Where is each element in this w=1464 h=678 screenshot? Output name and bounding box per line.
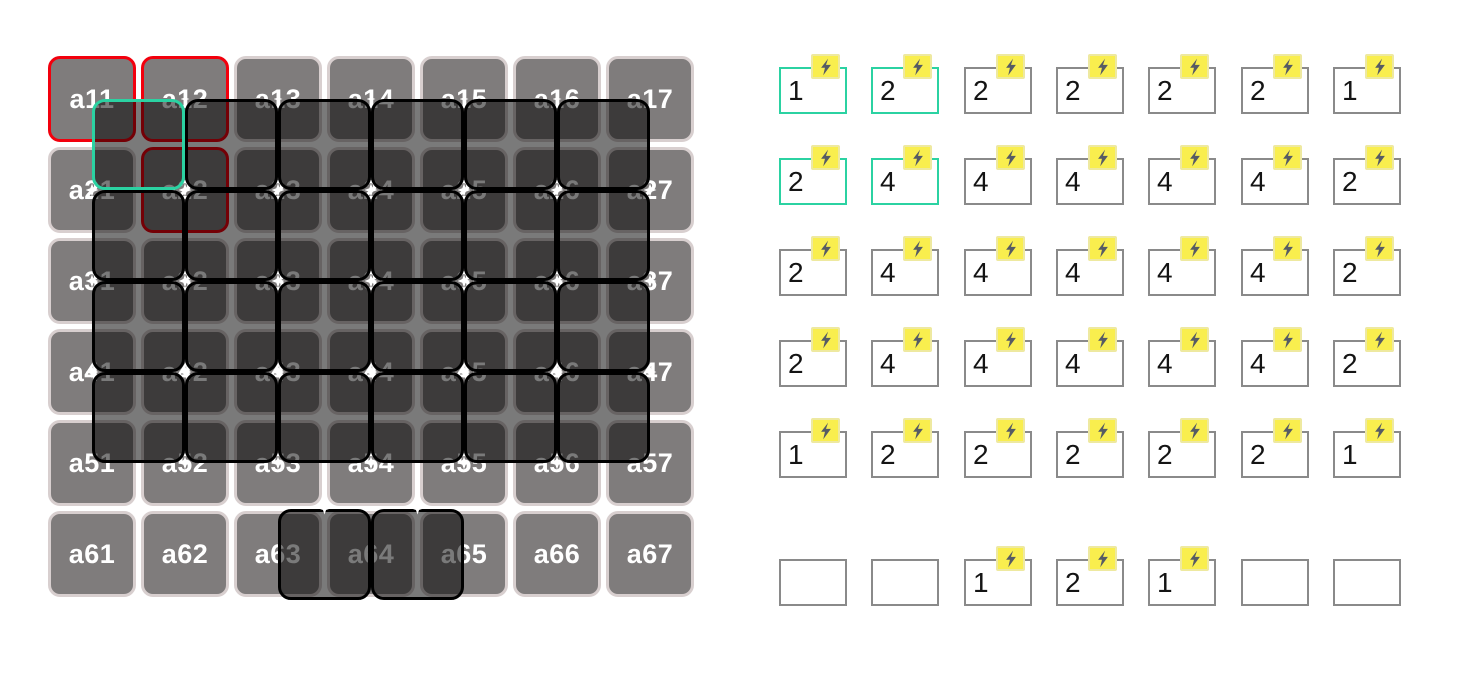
lightning-badge <box>1365 236 1394 261</box>
lightning-badge <box>811 236 840 261</box>
lightning-badge <box>1180 145 1209 170</box>
count-box: 4 <box>1056 158 1124 205</box>
kernel-overlay <box>92 281 185 372</box>
lightning-badge <box>1365 145 1394 170</box>
count-box: 2 <box>779 158 847 205</box>
lightning-badge <box>1365 54 1394 79</box>
lightning-badge <box>811 327 840 352</box>
lightning-bolt-icon <box>1373 330 1387 350</box>
count-box: 4 <box>1056 249 1124 296</box>
count-box <box>1333 559 1401 606</box>
count-box: 2 <box>871 67 939 114</box>
count-box: 2 <box>1056 67 1124 114</box>
lightning-badge <box>996 54 1025 79</box>
count-value: 1 <box>788 75 804 107</box>
count-box: 4 <box>1148 158 1216 205</box>
lightning-bolt-icon <box>1281 330 1295 350</box>
kernel-overlay-bottom <box>278 509 371 600</box>
lightning-bolt-icon <box>1096 239 1110 259</box>
lightning-badge <box>1273 418 1302 443</box>
count-box: 2 <box>964 67 1032 114</box>
pooling-coverage-diagram: a11a12a13a14a15a16a17a21a22a23a24a25a26a… <box>0 0 1464 678</box>
count-value: 4 <box>1065 348 1081 380</box>
count-box: 2 <box>1241 67 1309 114</box>
lightning-badge <box>996 418 1025 443</box>
count-box: 2 <box>1148 67 1216 114</box>
count-value: 1 <box>1157 567 1173 599</box>
count-value: 4 <box>880 166 896 198</box>
count-value: 4 <box>1250 348 1266 380</box>
count-box: 2 <box>1056 559 1124 606</box>
lightning-bolt-icon <box>819 421 833 441</box>
count-box: 1 <box>779 67 847 114</box>
count-value: 2 <box>1250 439 1266 471</box>
lightning-bolt-icon <box>1373 57 1387 77</box>
kernel-overlay <box>92 190 185 281</box>
grid-cell-a62: a62 <box>141 511 229 597</box>
count-box: 4 <box>1056 340 1124 387</box>
kernel-overlay <box>464 99 557 190</box>
count-value: 4 <box>1157 166 1173 198</box>
kernel-overlay <box>92 372 185 463</box>
lightning-bolt-icon <box>819 330 833 350</box>
lightning-badge <box>903 327 932 352</box>
lightning-bolt-icon <box>1096 549 1110 569</box>
count-box: 2 <box>1333 158 1401 205</box>
lightning-bolt-icon <box>1281 148 1295 168</box>
kernel-overlay <box>464 190 557 281</box>
count-value: 2 <box>1157 439 1173 471</box>
lightning-bolt-icon <box>1004 330 1018 350</box>
count-box: 2 <box>871 431 939 478</box>
lightning-bolt-icon <box>911 421 925 441</box>
lightning-bolt-icon <box>1188 330 1202 350</box>
lightning-bolt-icon <box>819 57 833 77</box>
grid-cell-a66: a66 <box>513 511 601 597</box>
count-box: 2 <box>964 431 1032 478</box>
lightning-badge <box>811 145 840 170</box>
count-box: 4 <box>964 340 1032 387</box>
kernel-overlay <box>557 99 650 190</box>
grid-cell-a67: a67 <box>606 511 694 597</box>
count-box: 2 <box>1056 431 1124 478</box>
count-value: 2 <box>1342 348 1358 380</box>
lightning-badge <box>811 418 840 443</box>
lightning-badge <box>1180 418 1209 443</box>
lightning-bolt-icon <box>1188 148 1202 168</box>
lightning-badge <box>903 418 932 443</box>
grid-cell-label: a62 <box>162 539 209 570</box>
lightning-bolt-icon <box>1004 148 1018 168</box>
count-box: 4 <box>1148 340 1216 387</box>
lightning-badge <box>903 54 932 79</box>
lightning-bolt-icon <box>911 330 925 350</box>
kernel-overlay <box>185 190 278 281</box>
lightning-bolt-icon <box>911 239 925 259</box>
lightning-badge <box>996 327 1025 352</box>
count-value: 2 <box>788 348 804 380</box>
kernel-overlay <box>464 281 557 372</box>
lightning-badge <box>1180 546 1209 571</box>
lightning-badge <box>1088 236 1117 261</box>
kernel-overlay <box>371 190 464 281</box>
kernel-overlay <box>464 372 557 463</box>
lightning-badge <box>1088 546 1117 571</box>
count-value: 4 <box>1250 257 1266 289</box>
count-box: 4 <box>871 249 939 296</box>
count-box: 1 <box>1333 67 1401 114</box>
lightning-badge <box>1180 54 1209 79</box>
lightning-bolt-icon <box>911 57 925 77</box>
count-box: 4 <box>964 158 1032 205</box>
count-value: 2 <box>1342 166 1358 198</box>
count-value: 4 <box>880 257 896 289</box>
lightning-badge <box>1273 145 1302 170</box>
count-value: 4 <box>1157 348 1173 380</box>
count-value: 4 <box>880 348 896 380</box>
lightning-badge <box>1273 236 1302 261</box>
kernel-overlay <box>557 281 650 372</box>
lightning-badge <box>1088 54 1117 79</box>
count-value: 2 <box>973 75 989 107</box>
lightning-bolt-icon <box>819 239 833 259</box>
count-value: 4 <box>1065 166 1081 198</box>
kernel-overlay <box>185 372 278 463</box>
kernel-overlay <box>278 99 371 190</box>
count-box: 2 <box>779 249 847 296</box>
kernel-overlay <box>278 372 371 463</box>
lightning-bolt-icon <box>819 148 833 168</box>
count-box: 2 <box>1333 340 1401 387</box>
count-value: 2 <box>880 439 896 471</box>
count-box: 1 <box>1333 431 1401 478</box>
count-box: 2 <box>779 340 847 387</box>
count-value: 1 <box>1342 439 1358 471</box>
grid-cell-label: a67 <box>627 539 674 570</box>
count-value: 4 <box>1157 257 1173 289</box>
lightning-bolt-icon <box>1188 549 1202 569</box>
count-value: 2 <box>1157 75 1173 107</box>
lightning-bolt-icon <box>911 148 925 168</box>
lightning-bolt-icon <box>1004 57 1018 77</box>
count-box: 4 <box>1241 340 1309 387</box>
lightning-bolt-icon <box>1004 239 1018 259</box>
count-value: 4 <box>1250 166 1266 198</box>
count-box <box>1241 559 1309 606</box>
count-box <box>779 559 847 606</box>
count-box: 4 <box>1241 158 1309 205</box>
lightning-badge <box>1365 327 1394 352</box>
lightning-badge <box>1180 236 1209 261</box>
lightning-badge <box>1088 145 1117 170</box>
lightning-bolt-icon <box>1188 57 1202 77</box>
sparkle-icon <box>133 503 145 515</box>
count-box: 4 <box>871 340 939 387</box>
count-box: 1 <box>779 431 847 478</box>
lightning-badge <box>1273 327 1302 352</box>
lightning-bolt-icon <box>1373 421 1387 441</box>
count-value: 1 <box>788 439 804 471</box>
lightning-badge <box>903 145 932 170</box>
count-value: 2 <box>1250 75 1266 107</box>
count-box: 4 <box>871 158 939 205</box>
sparkle-icon <box>598 503 610 515</box>
grid-cell-a61: a61 <box>48 511 136 597</box>
grid-cell-label: a61 <box>69 539 116 570</box>
lightning-bolt-icon <box>1373 148 1387 168</box>
lightning-bolt-icon <box>1096 421 1110 441</box>
grid-cell-label: a66 <box>534 539 581 570</box>
kernel-overlay <box>278 190 371 281</box>
count-value: 2 <box>788 166 804 198</box>
lightning-badge <box>1088 418 1117 443</box>
count-box: 2 <box>1148 431 1216 478</box>
kernel-overlay <box>371 99 464 190</box>
count-box: 4 <box>964 249 1032 296</box>
count-box: 1 <box>1148 559 1216 606</box>
lightning-badge <box>1365 418 1394 443</box>
count-box <box>871 559 939 606</box>
lightning-bolt-icon <box>1281 421 1295 441</box>
lightning-bolt-icon <box>1004 421 1018 441</box>
lightning-bolt-icon <box>1281 239 1295 259</box>
count-value: 2 <box>1342 257 1358 289</box>
count-value: 2 <box>1065 75 1081 107</box>
kernel-overlay <box>371 372 464 463</box>
lightning-bolt-icon <box>1096 148 1110 168</box>
count-value: 4 <box>973 257 989 289</box>
count-box: 4 <box>1148 249 1216 296</box>
count-value: 2 <box>788 257 804 289</box>
lightning-bolt-icon <box>1373 239 1387 259</box>
kernel-overlay <box>185 99 278 190</box>
count-value: 2 <box>1065 439 1081 471</box>
lightning-badge <box>811 54 840 79</box>
kernel-overlay <box>278 281 371 372</box>
lightning-bolt-icon <box>1188 239 1202 259</box>
count-box: 4 <box>1241 249 1309 296</box>
sparkle-icon <box>505 503 517 515</box>
lightning-bolt-icon <box>1096 330 1110 350</box>
count-value: 4 <box>973 348 989 380</box>
lightning-bolt-icon <box>1281 57 1295 77</box>
count-value: 2 <box>880 75 896 107</box>
count-box: 2 <box>1241 431 1309 478</box>
sparkle-icon <box>226 503 238 515</box>
lightning-bolt-icon <box>1004 549 1018 569</box>
count-box: 1 <box>964 559 1032 606</box>
lightning-badge <box>1180 327 1209 352</box>
kernel-overlay-bottom <box>371 509 464 600</box>
count-box: 2 <box>1333 249 1401 296</box>
kernel-overlay <box>557 372 650 463</box>
lightning-bolt-icon <box>1096 57 1110 77</box>
count-value: 2 <box>1065 567 1081 599</box>
count-value: 1 <box>1342 75 1358 107</box>
count-value: 1 <box>973 567 989 599</box>
kernel-overlay <box>185 281 278 372</box>
lightning-badge <box>1088 327 1117 352</box>
kernel-overlay-highlight <box>92 99 185 190</box>
kernel-overlay <box>557 190 650 281</box>
lightning-badge <box>996 546 1025 571</box>
count-value: 4 <box>1065 257 1081 289</box>
lightning-bolt-icon <box>1188 421 1202 441</box>
kernel-overlay <box>371 281 464 372</box>
lightning-badge <box>996 236 1025 261</box>
count-value: 4 <box>973 166 989 198</box>
count-value: 2 <box>973 439 989 471</box>
lightning-badge <box>1273 54 1302 79</box>
lightning-badge <box>903 236 932 261</box>
lightning-badge <box>996 145 1025 170</box>
